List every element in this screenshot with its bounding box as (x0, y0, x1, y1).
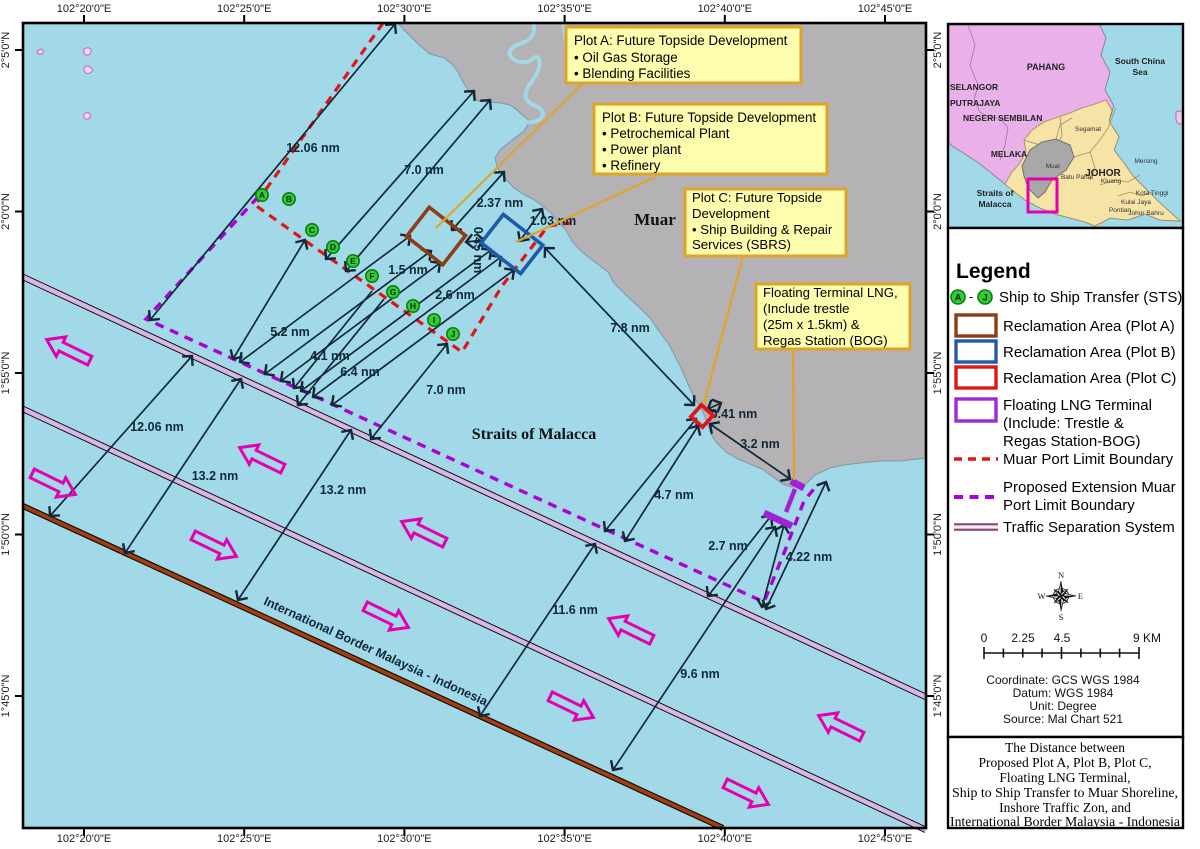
svg-text:• Petrochemical Plant: • Petrochemical Plant (602, 126, 730, 141)
svg-text:Muar: Muar (1046, 163, 1062, 170)
svg-text:Sea: Sea (1132, 67, 1147, 77)
svg-text:Regas Station-BOG): Regas Station-BOG) (1003, 433, 1141, 450)
svg-text:F: F (369, 271, 374, 281)
svg-text:Legend: Legend (956, 260, 1031, 283)
svg-text:PAHANG: PAHANG (1027, 62, 1065, 72)
svg-text:7.0 nm: 7.0 nm (404, 163, 444, 177)
svg-text:B: B (286, 194, 292, 204)
svg-text:2.7 nm: 2.7 nm (708, 539, 748, 553)
svg-text:7.8 nm: 7.8 nm (610, 321, 650, 335)
svg-text:H: H (410, 301, 416, 311)
svg-text:6.4 nm: 6.4 nm (340, 365, 380, 379)
svg-text:2.37 nm: 2.37 nm (477, 196, 524, 210)
svg-text:A: A (259, 190, 265, 200)
svg-text:(Include: Trestle &: (Include: Trestle & (1003, 415, 1124, 432)
svg-text:Plot B: Future Topside Develop: Plot B: Future Topside Development (602, 110, 816, 125)
svg-text:102°45'0"E: 102°45'0"E (858, 833, 912, 845)
svg-text:Source: Mal Chart 521: Source: Mal Chart 521 (1003, 712, 1123, 726)
svg-text:102°35'0"E: 102°35'0"E (537, 3, 591, 15)
svg-text:2°5'0"N: 2°5'0"N (0, 32, 12, 69)
svg-text:5.2 nm: 5.2 nm (270, 325, 310, 339)
svg-text:Reclamation Area (Plot C): Reclamation Area (Plot C) (1003, 370, 1176, 387)
svg-text:-: - (969, 289, 973, 304)
svg-text:Batu Pahat: Batu Pahat (1061, 174, 1093, 181)
svg-text:Inshore Traffic Zon, and: Inshore Traffic Zon, and (999, 800, 1131, 815)
svg-text:J: J (451, 329, 456, 339)
svg-text:Floating LNG Terminal,: Floating LNG Terminal, (999, 770, 1130, 785)
svg-text:D: D (330, 242, 336, 252)
svg-text:Regas Station (BOG): Regas Station (BOG) (763, 333, 888, 348)
svg-text:• Power plant: • Power plant (602, 142, 681, 157)
svg-text:13.2 nm: 13.2 nm (192, 469, 239, 483)
svg-text:Traffic Separation System: Traffic Separation System (1003, 519, 1175, 536)
svg-text:International Border Malaysia: International Border Malaysia - Indonesi… (950, 814, 1180, 829)
svg-text:9.6 nm: 9.6 nm (680, 667, 720, 681)
svg-text:NEGERI SEMBILAN: NEGERI SEMBILAN (963, 113, 1042, 123)
svg-text:9 KM: 9 KM (1133, 631, 1161, 645)
svg-text:Muar Port Limit Boundary: Muar Port Limit Boundary (1003, 451, 1174, 468)
svg-text:Services (SBRS): Services (SBRS) (692, 237, 791, 252)
svg-text:Plot C: Future Topside: Plot C: Future Topside (692, 190, 822, 205)
svg-text:0.41 nm: 0.41 nm (711, 407, 758, 421)
svg-text:102°35'0"E: 102°35'0"E (537, 833, 591, 845)
svg-text:13.2 nm: 13.2 nm (320, 483, 367, 497)
svg-text:4.22 nm: 4.22 nm (786, 550, 833, 564)
svg-text:(25m x 1.5km) &: (25m x 1.5km) & (763, 317, 860, 332)
svg-text:• Blending Facilities: • Blending Facilities (574, 66, 691, 81)
svg-text:Kota Tinggi: Kota Tinggi (1136, 190, 1169, 197)
svg-text:• Ship Building & Repair: • Ship Building & Repair (692, 222, 833, 237)
svg-text:W: W (1037, 591, 1045, 601)
svg-text:Muar: Muar (634, 210, 676, 229)
svg-text:G: G (390, 287, 397, 297)
svg-text:2.25: 2.25 (1011, 631, 1035, 645)
svg-text:N: N (1058, 570, 1064, 580)
svg-text:Johor Bahru: Johor Bahru (1128, 210, 1164, 217)
svg-text:1°45'0"N: 1°45'0"N (0, 675, 12, 718)
svg-text:Proposed Extension Muar: Proposed Extension Muar (1003, 479, 1176, 496)
svg-text:2°5'0"N: 2°5'0"N (932, 32, 944, 69)
svg-text:1°55'0"N: 1°55'0"N (0, 352, 12, 395)
svg-text:12.06 nm: 12.06 nm (286, 141, 340, 155)
svg-text:Straits of: Straits of (977, 188, 1014, 198)
svg-text:The Distance between: The Distance between (1005, 740, 1125, 755)
svg-text:1°45'0"N: 1°45'0"N (932, 675, 944, 718)
svg-text:0: 0 (981, 631, 988, 645)
svg-text:Unit: Degree: Unit: Degree (1029, 699, 1097, 713)
svg-text:102°20'0"E: 102°20'0"E (57, 3, 111, 15)
svg-text:E: E (350, 256, 356, 266)
svg-text:Floating LNG Terminal: Floating LNG Terminal (1003, 397, 1152, 414)
svg-text:1°50'0"N: 1°50'0"N (932, 513, 944, 556)
svg-text:PUTRAJAYA: PUTRAJAYA (950, 98, 1000, 108)
svg-text:1.5 nm: 1.5 nm (388, 263, 428, 277)
svg-text:MELAKA: MELAKA (991, 149, 1027, 159)
svg-text:0.45 nm: 0.45 nm (471, 227, 485, 274)
svg-text:Reclamation Area (Plot A): Reclamation Area (Plot A) (1003, 318, 1175, 335)
svg-text:Proposed Plot A, Plot B, Plot: Proposed Plot A, Plot B, Plot C, (979, 755, 1152, 770)
svg-text:Port Limit Boundary: Port Limit Boundary (1003, 497, 1135, 514)
svg-text:2.6 nm: 2.6 nm (435, 288, 475, 302)
svg-text:South China: South China (1115, 56, 1165, 66)
svg-text:2°0'0"N: 2°0'0"N (932, 193, 944, 230)
svg-text:3.2 nm: 3.2 nm (740, 437, 780, 451)
svg-text:4.7 nm: 4.7 nm (654, 488, 694, 502)
svg-text:(Include trestle: (Include trestle (763, 301, 850, 316)
svg-text:Reclamation Area (Plot B): Reclamation Area (Plot B) (1003, 344, 1176, 361)
svg-text:102°25'0"E: 102°25'0"E (217, 3, 271, 15)
svg-text:Kluang: Kluang (1101, 178, 1122, 185)
svg-text:• Oil Gas Storage: • Oil Gas Storage (574, 50, 678, 65)
svg-text:Floating Terminal LNG,: Floating Terminal LNG, (763, 285, 898, 300)
svg-text:Malacca: Malacca (978, 199, 1011, 209)
svg-text:4.1 nm: 4.1 nm (310, 349, 350, 363)
svg-text:7.0 nm: 7.0 nm (426, 383, 466, 397)
svg-text:J: J (982, 293, 987, 304)
svg-text:C: C (309, 225, 315, 235)
svg-text:• Refinery: • Refinery (602, 158, 661, 173)
svg-text:Coordinate: GCS WGS 1984: Coordinate: GCS WGS 1984 (986, 673, 1140, 687)
svg-text:I: I (433, 315, 435, 325)
svg-text:E: E (1078, 591, 1083, 601)
svg-text:102°45'0"E: 102°45'0"E (858, 3, 912, 15)
svg-text:102°40'0"E: 102°40'0"E (698, 833, 752, 845)
svg-text:102°40'0"E: 102°40'0"E (698, 3, 752, 15)
svg-text:102°30'0"E: 102°30'0"E (377, 833, 431, 845)
svg-text:SELANGOR: SELANGOR (950, 82, 998, 92)
svg-text:1°55'0"N: 1°55'0"N (932, 352, 944, 395)
svg-text:Plot A: Future Topside Develop: Plot A: Future Topside Development (574, 33, 788, 48)
svg-text:S: S (1059, 612, 1064, 622)
svg-text:102°25'0"E: 102°25'0"E (217, 833, 271, 845)
svg-text:2°0'0"N: 2°0'0"N (0, 193, 12, 230)
svg-text:Segamat: Segamat (1075, 126, 1101, 133)
svg-text:4.5: 4.5 (1054, 631, 1071, 645)
svg-text:12.06 nm: 12.06 nm (130, 420, 184, 434)
svg-text:A: A (955, 293, 962, 304)
svg-text:Development: Development (692, 206, 770, 221)
svg-text:102°30'0"E: 102°30'0"E (377, 3, 431, 15)
svg-text:Datum: WGS 1984: Datum: WGS 1984 (1013, 686, 1114, 700)
svg-text:Straits of Malacca: Straits of Malacca (472, 426, 596, 443)
svg-text:1°50'0"N: 1°50'0"N (0, 513, 12, 556)
svg-text:11.6 nm: 11.6 nm (552, 603, 598, 617)
svg-text:Mersing: Mersing (1134, 158, 1158, 165)
svg-text:Ship to Ship Transfer (STS): Ship to Ship Transfer (STS) (999, 289, 1182, 306)
svg-text:102°20'0"E: 102°20'0"E (57, 833, 111, 845)
svg-text:Ship to Ship Transfer to Muar: Ship to Ship Transfer to Muar Shoreline, (952, 785, 1178, 800)
svg-text:Kulai Jaya: Kulai Jaya (1121, 199, 1151, 206)
